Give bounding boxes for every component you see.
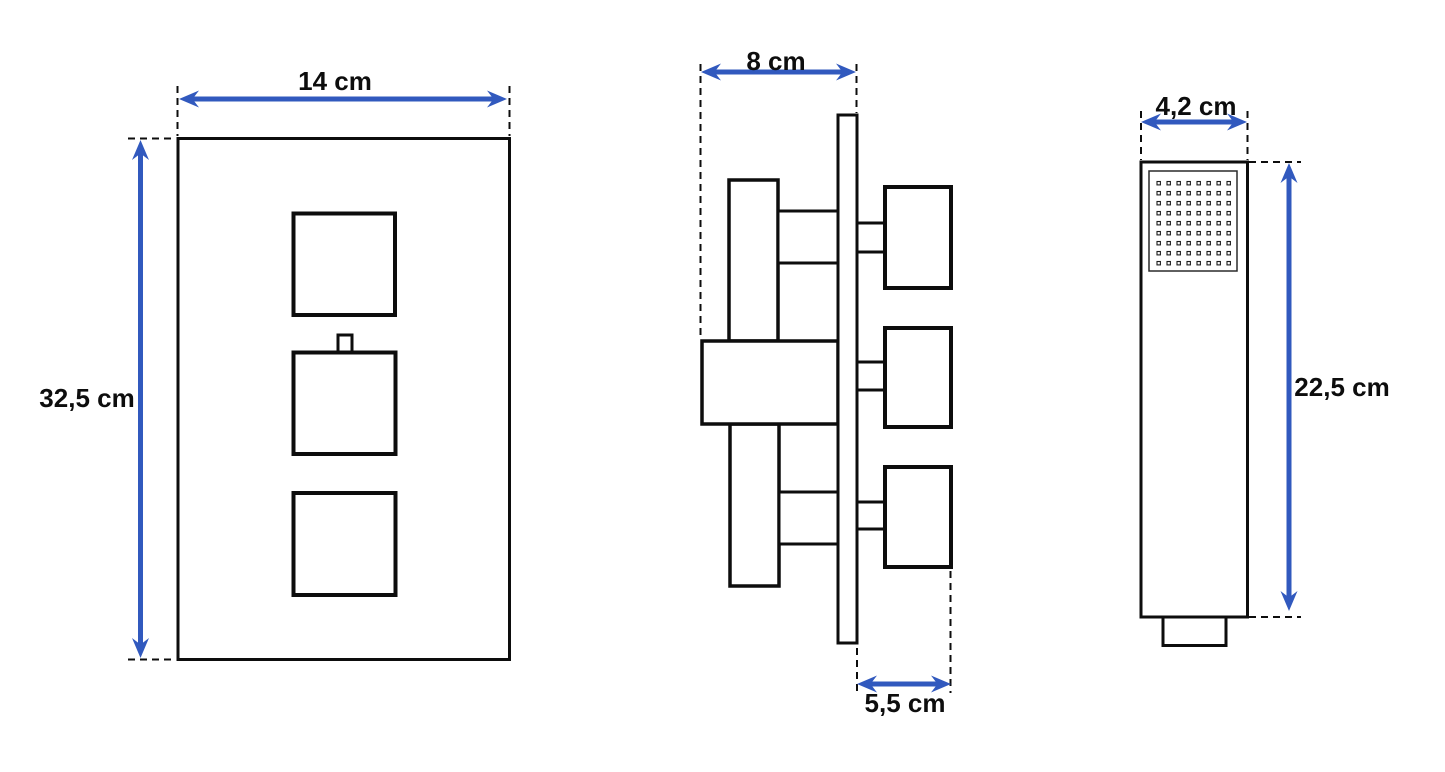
handle-top-profile	[885, 187, 951, 288]
nozzle-dot	[1157, 242, 1160, 245]
front-knob-bottom	[294, 493, 396, 595]
dimension-handle-depth: 5,5 cm	[857, 571, 951, 718]
nozzle-dot	[1157, 192, 1160, 195]
nozzle-dot	[1177, 212, 1180, 215]
nozzle-dot	[1187, 222, 1190, 225]
wall-plate-profile	[838, 115, 857, 643]
front-knob-top	[294, 214, 396, 316]
nozzle-dot	[1177, 192, 1180, 195]
nozzle-dot	[1197, 202, 1200, 205]
nozzle-dot	[1207, 242, 1210, 245]
nozzle-dot	[1227, 212, 1230, 215]
nozzle-dot	[1197, 222, 1200, 225]
nozzle-dot	[1157, 232, 1160, 235]
nozzle-dot	[1197, 212, 1200, 215]
nozzle-dot	[1177, 202, 1180, 205]
nozzle-dot	[1177, 182, 1180, 185]
valve-lower-block	[730, 424, 779, 586]
nozzle-dot	[1217, 262, 1220, 265]
valve-upper-stem	[778, 211, 838, 263]
nozzle-dot	[1217, 252, 1220, 255]
dimension-label-front-height: 32,5 cm	[39, 383, 134, 413]
nozzle-dot	[1227, 232, 1230, 235]
nozzle-dot	[1157, 182, 1160, 185]
nozzle-dot	[1157, 252, 1160, 255]
nozzle-dot	[1227, 262, 1230, 265]
nozzle-dot	[1167, 232, 1170, 235]
nozzle-dot	[1227, 252, 1230, 255]
dimension-label-shower-height: 22,5 cm	[1294, 372, 1389, 402]
nozzle-dot	[1167, 262, 1170, 265]
dimension-label-front-width: 14 cm	[298, 66, 372, 96]
nozzle-dot	[1207, 192, 1210, 195]
nozzle-dot	[1217, 222, 1220, 225]
nozzle-dot	[1227, 182, 1230, 185]
nozzle-dot	[1207, 182, 1210, 185]
nozzle-dot	[1197, 262, 1200, 265]
dimension-shower-width: 4,2 cm	[1141, 91, 1248, 160]
nozzle-dot	[1187, 192, 1190, 195]
nozzle-dot	[1217, 242, 1220, 245]
technical-drawing-canvas: 14 cm 32,5 cm 8 cm	[0, 0, 1445, 772]
dimension-label-shower-width: 4,2 cm	[1156, 91, 1237, 121]
handle-middle-profile	[885, 328, 951, 427]
nozzle-dot	[1167, 182, 1170, 185]
nozzle-dot	[1227, 242, 1230, 245]
nozzle-dot	[1227, 222, 1230, 225]
front-knob-middle	[294, 353, 396, 455]
nozzle-dot	[1167, 222, 1170, 225]
nozzle-dot	[1167, 202, 1170, 205]
nozzle-dot	[1227, 192, 1230, 195]
dimension-shower-height: 22,5 cm	[1249, 162, 1390, 617]
spray-face-plate	[1149, 171, 1237, 271]
nozzle-dot	[1207, 212, 1210, 215]
valve-lower-stem	[779, 492, 838, 544]
hand-shower-view: 4,2 cm 22,5 cm	[1141, 91, 1390, 646]
nozzle-dot	[1197, 242, 1200, 245]
front-knob-middle-notch	[338, 335, 352, 353]
nozzle-dot	[1177, 222, 1180, 225]
dimension-front-width: 14 cm	[178, 66, 510, 136]
nozzle-dot	[1157, 262, 1160, 265]
hose-connector	[1163, 617, 1226, 646]
nozzle-dot	[1167, 212, 1170, 215]
dimension-front-height: 32,5 cm	[39, 139, 176, 660]
nozzle-dot	[1177, 252, 1180, 255]
nozzle-dot	[1187, 242, 1190, 245]
nozzle-dot	[1197, 252, 1200, 255]
nozzle-dot	[1187, 212, 1190, 215]
nozzle-dot	[1157, 222, 1160, 225]
nozzle-dot	[1187, 232, 1190, 235]
nozzle-dot	[1197, 182, 1200, 185]
nozzle-dot	[1157, 202, 1160, 205]
side-view: 8 cm 5,5 cm	[701, 46, 952, 718]
nozzle-dot	[1187, 252, 1190, 255]
nozzle-dot	[1217, 212, 1220, 215]
nozzle-dot	[1167, 242, 1170, 245]
front-view: 14 cm 32,5 cm	[39, 66, 509, 660]
nozzle-dot	[1227, 202, 1230, 205]
nozzle-dot	[1157, 212, 1160, 215]
nozzle-dot	[1177, 232, 1180, 235]
nozzle-dot	[1167, 252, 1170, 255]
nozzle-dot	[1217, 182, 1220, 185]
nozzle-dot	[1217, 202, 1220, 205]
dimension-label-side-depth: 8 cm	[746, 46, 805, 76]
nozzle-dot	[1217, 192, 1220, 195]
dimension-label-handle-depth: 5,5 cm	[865, 688, 946, 718]
nozzle-dot	[1187, 202, 1190, 205]
handle-bottom-profile	[885, 467, 951, 567]
nozzle-dot	[1207, 222, 1210, 225]
nozzle-dot	[1187, 262, 1190, 265]
nozzle-dot	[1197, 192, 1200, 195]
nozzle-dot	[1217, 232, 1220, 235]
nozzle-dot	[1177, 262, 1180, 265]
nozzle-dot	[1207, 252, 1210, 255]
valve-central-body	[702, 341, 838, 424]
nozzle-dot	[1197, 232, 1200, 235]
nozzle-dot	[1207, 202, 1210, 205]
nozzle-dot	[1207, 262, 1210, 265]
nozzle-dot	[1207, 232, 1210, 235]
nozzle-dot	[1187, 182, 1190, 185]
nozzle-dot	[1167, 192, 1170, 195]
valve-upper-block	[729, 180, 778, 341]
nozzle-dot	[1177, 242, 1180, 245]
